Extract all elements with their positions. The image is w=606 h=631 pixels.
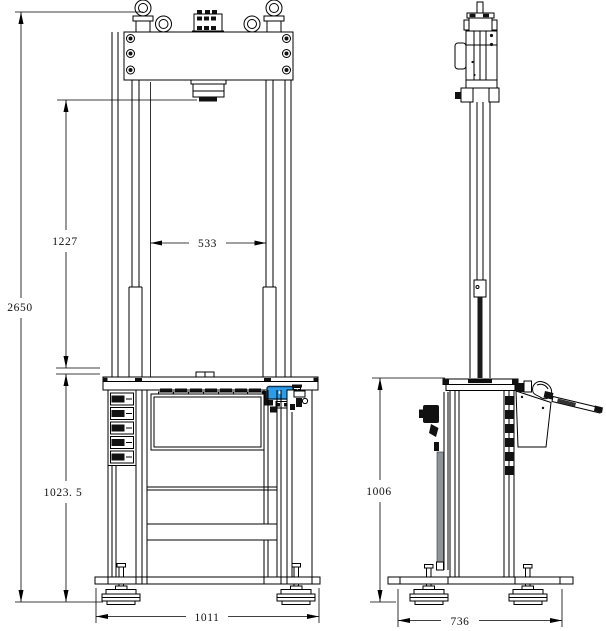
drawer [111, 437, 134, 449]
column-side [470, 102, 490, 378]
drawer [111, 408, 134, 420]
column-stub [267, 21, 281, 32]
drawer [111, 393, 134, 405]
eyebolt-ring [156, 16, 172, 32]
drawer [111, 451, 134, 463]
front-panel [151, 394, 264, 450]
side-valve-mechanism [419, 405, 439, 451]
top-crossbeam [124, 32, 293, 80]
dimension-column-clearance-label: 533 [198, 238, 217, 250]
eyebolt-washer [133, 16, 153, 21]
technical-drawing: 2650 1227 1023. 5 533 [0, 0, 606, 631]
dimension-table-height-label: 1023. 5 [44, 487, 83, 499]
worktable-side [443, 379, 518, 391]
dimension-daylight-height-label: 1227 [52, 236, 77, 248]
pedestal-side [419, 391, 514, 578]
dimension-stand-height-label: 1006 [366, 486, 391, 498]
dimension-base-width-label: 1011 [195, 612, 220, 624]
drawer [111, 422, 134, 434]
eyebolt-washer [264, 16, 284, 21]
press-pad [199, 97, 217, 102]
press-ram [191, 80, 226, 102]
junction-block [192, 10, 224, 31]
dimension-table-height: 1023. 5 [40, 374, 100, 602]
drawer-cabinet [108, 390, 136, 577]
machine-base-side [388, 577, 573, 584]
right-cabinet [287, 390, 312, 577]
side-panel-strip [437, 452, 444, 562]
side-view [388, 2, 603, 605]
dimension-daylight-height: 1227 [46, 100, 197, 368]
cross-braces [147, 487, 277, 540]
front-view [95, 0, 320, 605]
eyebolt-ring [135, 0, 151, 16]
side-motor-boss [455, 43, 466, 69]
rod-sensor [474, 280, 486, 297]
machine-base-front [95, 577, 320, 584]
head-assembly-side [455, 2, 499, 102]
bracket-panel [516, 391, 551, 447]
dimension-overall-height-label: 2650 [7, 302, 32, 314]
column-stub [136, 21, 150, 32]
dimension-base-depth-label: 736 [450, 616, 469, 628]
eyebolt-ring [266, 0, 282, 16]
eyebolt-ring [244, 16, 260, 32]
dimension-column-clearance: 533 [151, 235, 267, 250]
drawing-canvas: 2650 1227 1023. 5 533 [0, 0, 606, 631]
